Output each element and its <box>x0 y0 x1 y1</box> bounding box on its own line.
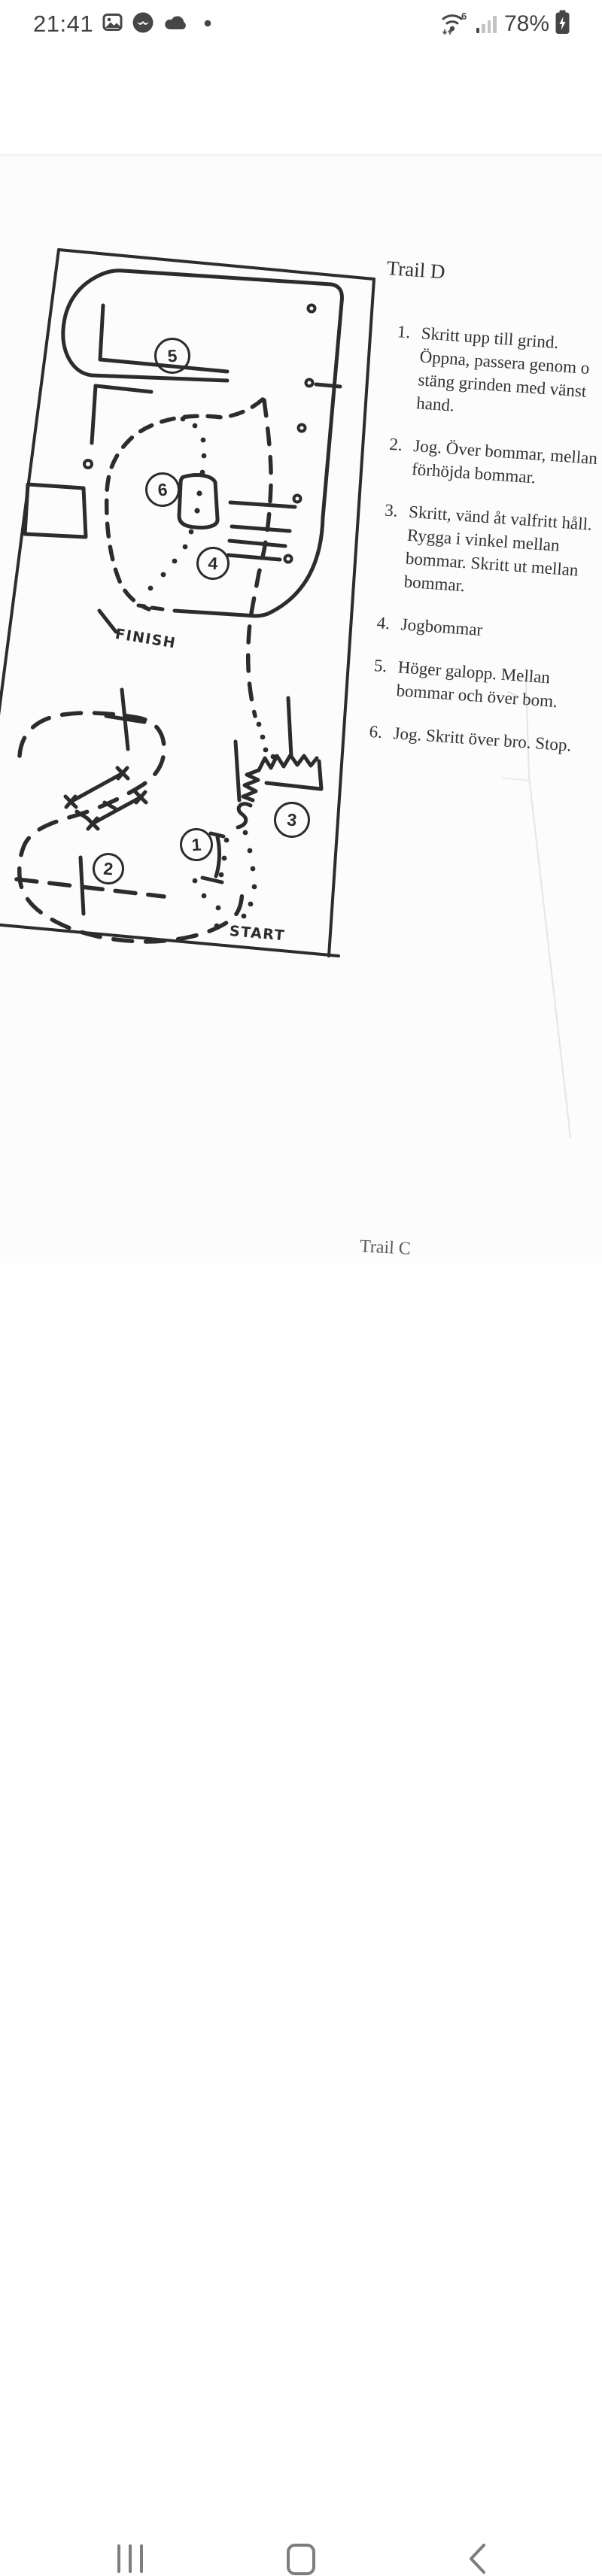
svg-text:6: 6 <box>461 11 467 22</box>
instruction-number: 4. <box>376 611 402 636</box>
instruction-item-6: 6. Jog. Skritt över bro. Stop. <box>354 718 602 759</box>
instruction-line: Jogbommar <box>400 612 484 642</box>
instruction-number: 6. <box>369 720 394 745</box>
nav-home-button[interactable] <box>286 2543 316 2576</box>
weather-notification-icon <box>163 14 189 35</box>
instruction-item-2: 2. Jog. Över bommar, mellan förhöjda bom… <box>372 431 602 495</box>
nav-back-button[interactable] <box>461 2541 494 2576</box>
recents-icon <box>117 2544 120 2573</box>
instruction-list: Trail D 1. Skritt upp till grind. Öppna,… <box>352 256 602 778</box>
home-icon <box>287 2544 315 2575</box>
battery-percent: 78% <box>504 11 549 37</box>
wifi-6-icon: 6 <box>441 9 470 40</box>
battery-charging-icon <box>555 10 570 38</box>
recents-icon <box>129 2544 132 2573</box>
notification-dot <box>204 17 211 31</box>
instruction-item-1: 1. Skritt upp till grind. Öppna, passera… <box>376 319 602 429</box>
signal-icon <box>476 15 497 33</box>
instruction-line: Jog. Skritt över bro. Stop. <box>393 721 573 757</box>
phone-screen: { "status_bar": { "time": "21:41", "wifi… <box>0 0 602 1338</box>
instruction-item-4: 4. Jogbommar <box>361 610 602 651</box>
gallery-notification-icon <box>102 12 123 36</box>
status-bar: 21:41 <box>0 0 602 48</box>
instruction-number: 2. <box>387 432 414 481</box>
app-notification-icon <box>132 11 154 38</box>
back-chevron-icon <box>466 2542 488 2575</box>
instruction-item-5: 5. Höger galopp. Mellan bommar och över … <box>357 653 602 717</box>
next-page-title: Trail C <box>359 1236 411 1260</box>
instruction-item-3: 3. Skritt, vänd åt valfritt håll. Rygga … <box>364 497 602 608</box>
nav-recents-button[interactable] <box>104 2541 157 2576</box>
instruction-number: 5. <box>372 654 399 702</box>
clock: 21:41 <box>33 11 93 38</box>
navigation-bar <box>0 1263 602 1338</box>
recents-icon <box>140 2544 143 2573</box>
